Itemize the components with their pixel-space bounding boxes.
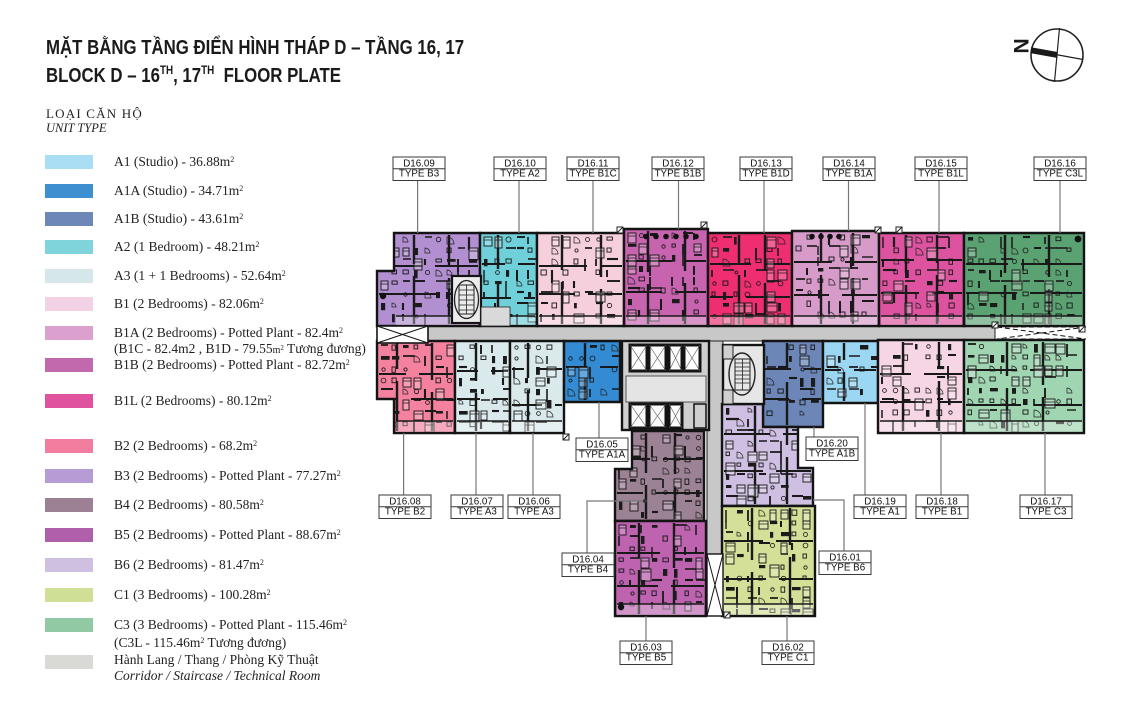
svg-text:TYPE B1A: TYPE B1A xyxy=(826,169,873,180)
svg-text:TYPE B1B: TYPE B1B xyxy=(655,169,702,180)
svg-text:TYPE B2: TYPE B2 xyxy=(385,507,425,518)
svg-text:TYPE C3: TYPE C3 xyxy=(1026,507,1067,518)
svg-text:TYPE B3: TYPE B3 xyxy=(399,169,440,180)
svg-text:TYPE B1C: TYPE B1C xyxy=(569,169,616,180)
svg-text:TYPE B1D: TYPE B1D xyxy=(742,169,789,180)
svg-text:TYPE A1B: TYPE A1B xyxy=(809,449,856,460)
svg-text:TYPE B5: TYPE B5 xyxy=(626,653,667,664)
svg-text:TYPE B6: TYPE B6 xyxy=(825,563,866,574)
svg-text:TYPE A1A: TYPE A1A xyxy=(579,450,626,461)
svg-text:TYPE A3: TYPE A3 xyxy=(457,507,497,518)
svg-text:N: N xyxy=(1009,38,1032,53)
svg-text:TYPE B1: TYPE B1 xyxy=(922,507,962,518)
svg-text:TYPE C3L: TYPE C3L xyxy=(1037,169,1084,180)
svg-text:TYPE C1: TYPE C1 xyxy=(768,653,809,664)
svg-text:TYPE A3: TYPE A3 xyxy=(514,507,554,518)
svg-text:TYPE A2: TYPE A2 xyxy=(500,169,540,180)
svg-text:TYPE B1L: TYPE B1L xyxy=(918,169,964,180)
svg-text:TYPE B4: TYPE B4 xyxy=(568,565,609,576)
svg-text:TYPE A1: TYPE A1 xyxy=(860,507,900,518)
